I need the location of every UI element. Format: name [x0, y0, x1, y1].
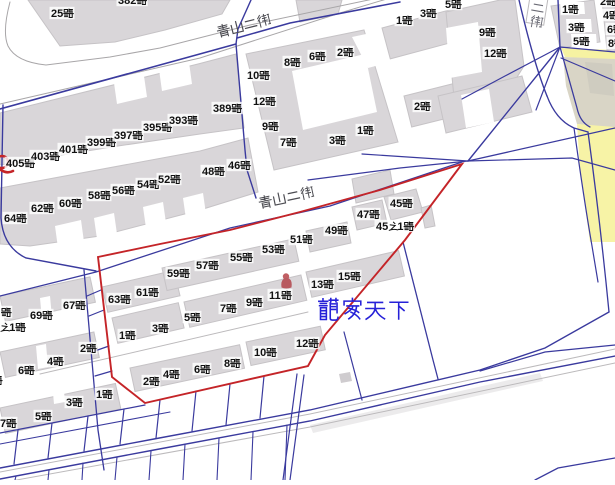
svg-text:56: 56: [112, 185, 124, 197]
svg-text:51: 51: [290, 234, 302, 246]
svg-text:55: 55: [230, 252, 242, 264]
svg-text:405: 405: [6, 158, 24, 170]
svg-text:6: 6: [18, 365, 24, 377]
svg-text:6: 6: [194, 364, 200, 376]
svg-text:2: 2: [414, 101, 420, 113]
svg-text:49: 49: [325, 225, 337, 237]
svg-text:1: 1: [397, 221, 403, 233]
svg-text:397: 397: [114, 130, 132, 142]
svg-text:62: 62: [31, 203, 43, 215]
svg-text:4: 4: [47, 356, 54, 368]
svg-text:5: 5: [35, 411, 41, 423]
svg-text:2: 2: [80, 343, 86, 355]
svg-text:3: 3: [568, 22, 574, 34]
svg-text:57: 57: [196, 260, 208, 272]
svg-text:3: 3: [66, 397, 72, 409]
svg-text:399: 399: [87, 137, 105, 149]
svg-text:1: 1: [119, 330, 125, 342]
svg-text:4: 4: [163, 369, 170, 381]
svg-text:9: 9: [246, 297, 252, 309]
svg-text:389: 389: [213, 103, 231, 115]
svg-text:2: 2: [143, 376, 149, 388]
svg-text:12: 12: [484, 48, 496, 60]
svg-text:53: 53: [262, 244, 274, 256]
svg-text:15: 15: [338, 271, 350, 283]
svg-text:5: 5: [445, 0, 451, 11]
svg-text:58: 58: [88, 190, 100, 202]
svg-text:25: 25: [51, 8, 63, 20]
svg-text:1: 1: [357, 125, 363, 137]
svg-text:2: 2: [337, 47, 343, 59]
svg-text:1: 1: [9, 322, 15, 334]
svg-text:403: 403: [31, 151, 49, 163]
svg-text:395: 395: [143, 122, 161, 134]
svg-text:61: 61: [136, 287, 148, 299]
svg-text:47: 47: [357, 209, 369, 221]
svg-text:10: 10: [254, 347, 266, 359]
svg-text:13: 13: [311, 279, 323, 291]
svg-text:393: 393: [169, 115, 187, 127]
svg-text:10: 10: [247, 70, 259, 82]
svg-text:48: 48: [202, 166, 214, 178]
svg-text:1: 1: [96, 389, 102, 401]
svg-text:45: 45: [390, 198, 402, 210]
svg-text:8: 8: [608, 38, 614, 50]
svg-text:6: 6: [309, 51, 315, 63]
svg-text:9: 9: [262, 121, 268, 133]
svg-text:12: 12: [253, 96, 265, 108]
svg-text:12: 12: [296, 338, 308, 350]
svg-text:3: 3: [420, 8, 426, 20]
svg-text:64: 64: [4, 213, 17, 225]
svg-text:52: 52: [158, 174, 170, 186]
svg-text:59: 59: [167, 268, 179, 280]
svg-text:69: 69: [30, 310, 42, 322]
svg-text:1: 1: [396, 15, 402, 27]
svg-text:45: 45: [376, 221, 388, 233]
svg-text:401: 401: [59, 144, 77, 156]
svg-text:11: 11: [269, 290, 281, 302]
svg-text:63: 63: [108, 294, 120, 306]
svg-text:6: 6: [607, 24, 613, 36]
svg-text:8: 8: [284, 57, 290, 69]
svg-text:7: 7: [280, 137, 286, 149]
svg-text:54: 54: [137, 179, 150, 191]
svg-text:5: 5: [184, 312, 190, 324]
svg-text:60: 60: [59, 198, 71, 210]
svg-text:3: 3: [152, 323, 158, 335]
svg-text:67: 67: [63, 300, 75, 312]
svg-text:8: 8: [224, 358, 230, 370]
svg-text:1: 1: [562, 4, 568, 16]
svg-text:5: 5: [573, 36, 579, 48]
svg-text:382: 382: [118, 0, 136, 7]
svg-text:2: 2: [600, 0, 606, 8]
svg-text:9: 9: [479, 27, 485, 39]
svg-text:7: 7: [220, 303, 226, 315]
svg-text:4: 4: [603, 10, 610, 22]
svg-text:3: 3: [329, 135, 335, 147]
svg-text:46: 46: [228, 160, 240, 172]
svg-text:7: 7: [0, 418, 6, 430]
